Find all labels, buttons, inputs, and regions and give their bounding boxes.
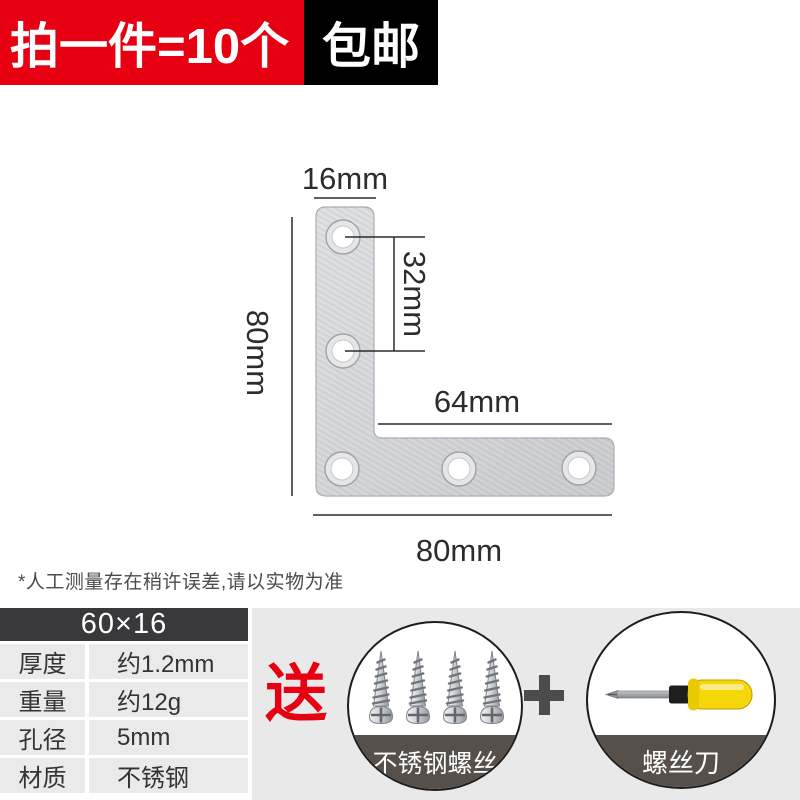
dim-label-left-height: 80mm: [240, 310, 275, 396]
plus-icon: [524, 675, 564, 715]
spec-value: 约1.2mm: [89, 644, 248, 679]
gift-item-name: 不锈钢螺丝: [372, 750, 497, 778]
spec-row-hole-diameter: 孔径 5mm: [0, 720, 248, 755]
dim-label-inner-length: 64mm: [434, 384, 520, 419]
free-shipping-banner: 包邮: [304, 0, 438, 85]
gift-item-screwdriver: 螺丝刀: [586, 611, 776, 789]
spec-label: 厚度: [0, 644, 85, 679]
gift-label: 送: [265, 664, 327, 726]
free-shipping-text: 包邮: [322, 7, 420, 78]
bracket-dimension-diagram: 16mm 80mm 32mm 64mm 80mm: [230, 140, 650, 580]
spec-row-weight: 重量 约12g: [0, 682, 248, 717]
screwdriver-image: [602, 673, 760, 717]
dim-label-hole-spacing: 32mm: [397, 251, 432, 337]
promo-banner: 拍一件=10个 包邮: [0, 0, 438, 85]
spec-label: 重量: [0, 682, 85, 717]
dim-label-top-width: 16mm: [302, 161, 388, 196]
spec-label: 材质: [0, 758, 85, 793]
spec-row-thickness: 厚度 约1.2mm: [0, 644, 248, 679]
spec-value: 5mm: [89, 720, 248, 755]
gift-item-name: 螺丝刀: [642, 748, 720, 778]
screw-hole: [442, 452, 476, 486]
screw-hole: [562, 451, 596, 485]
spec-label: 孔径: [0, 720, 85, 755]
measurement-disclaimer: *人工测量存在稍许误差,请以实物为准: [18, 567, 344, 594]
promo-quantity-banner: 拍一件=10个: [0, 0, 304, 85]
spec-value: 约12g: [89, 682, 248, 717]
promo-quantity-text: 拍一件=10个: [10, 7, 289, 78]
product-infographic: 拍一件=10个 包邮: [0, 0, 800, 800]
gift-item-band: 不锈钢螺丝: [349, 735, 521, 789]
screw-hole: [325, 452, 359, 486]
gift-item-band: 螺丝刀: [588, 735, 774, 787]
spec-table: 60×16 厚度 约1.2mm 重量 约12g 孔径 5mm 材质 不锈钢: [0, 608, 248, 796]
dim-label-bottom-width: 80mm: [416, 533, 502, 568]
spec-row-material: 材质 不锈钢: [0, 758, 248, 793]
gift-item-screws: 不锈钢螺丝: [347, 621, 523, 791]
spec-table-header: 60×16: [0, 608, 248, 641]
spec-value: 不锈钢: [89, 758, 248, 793]
gift-panel: 送: [252, 608, 800, 800]
screws-image: [366, 649, 508, 729]
